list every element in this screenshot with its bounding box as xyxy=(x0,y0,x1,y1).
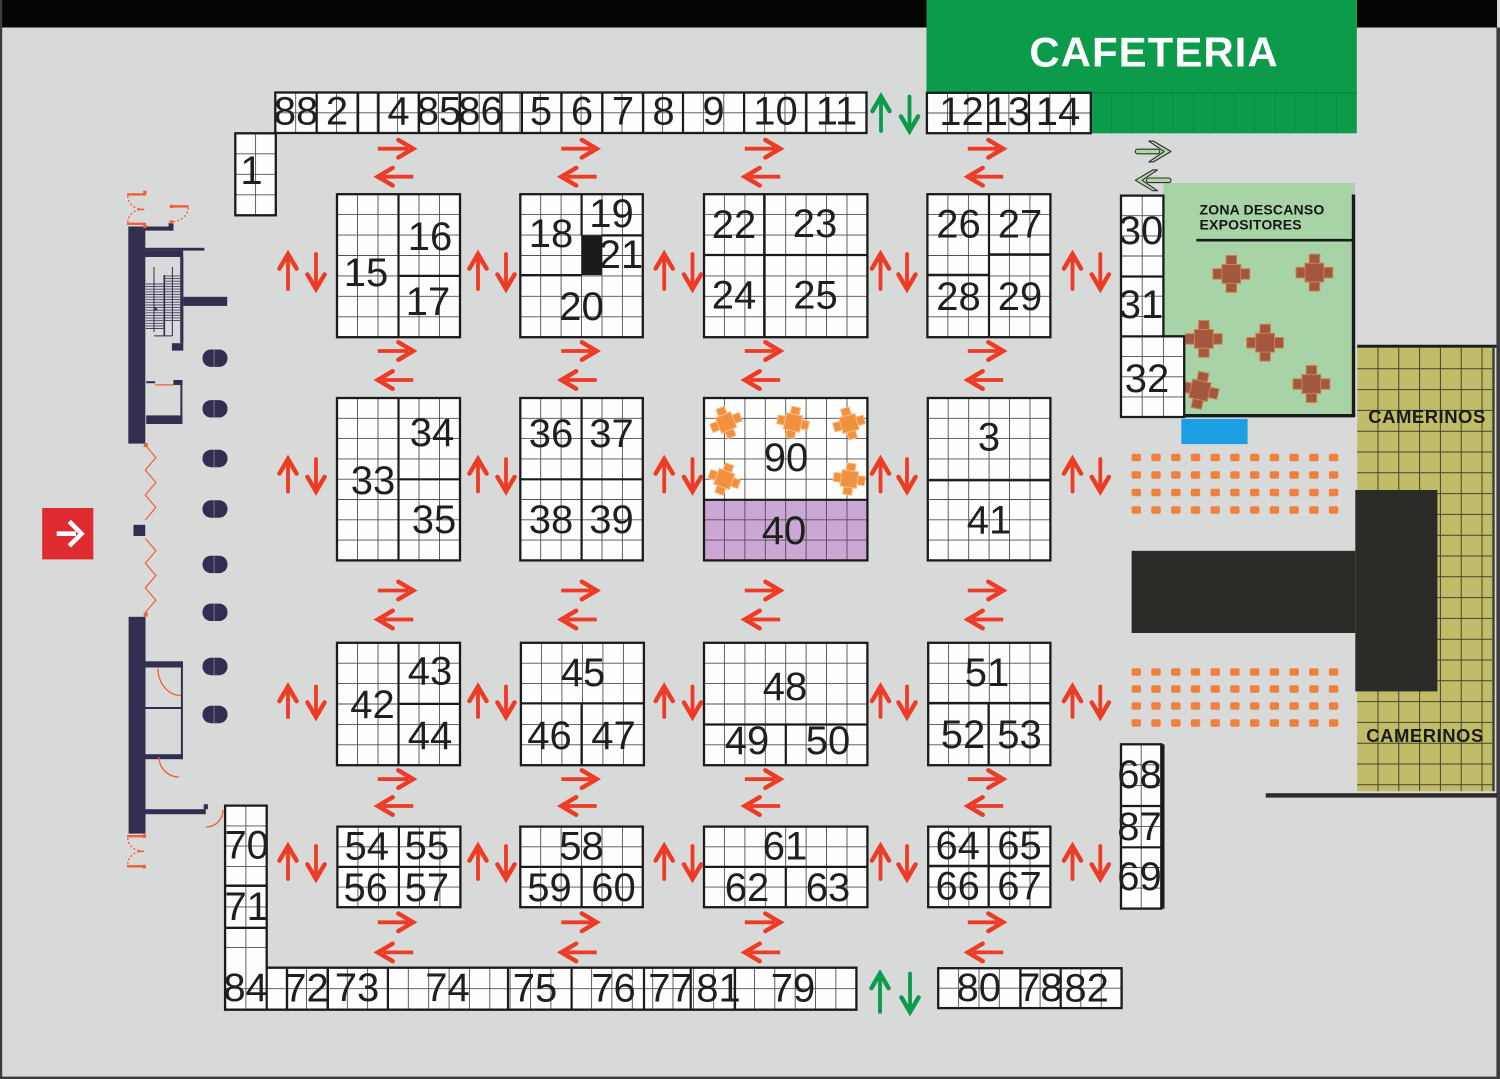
svg-text:10: 10 xyxy=(753,90,798,134)
svg-text:33: 33 xyxy=(351,459,396,503)
svg-text:37: 37 xyxy=(589,412,634,456)
svg-text:4: 4 xyxy=(387,90,409,134)
svg-text:77: 77 xyxy=(648,967,693,1011)
svg-text:69: 69 xyxy=(1117,855,1162,899)
svg-text:74: 74 xyxy=(425,966,470,1010)
svg-text:85: 85 xyxy=(417,90,462,134)
svg-text:41: 41 xyxy=(967,498,1012,542)
svg-text:27: 27 xyxy=(998,202,1043,246)
svg-text:16: 16 xyxy=(408,215,453,259)
svg-text:9: 9 xyxy=(702,90,724,134)
svg-text:72: 72 xyxy=(284,967,329,1011)
svg-text:49: 49 xyxy=(725,719,770,763)
svg-text:EXPOSITORES: EXPOSITORES xyxy=(1200,217,1302,233)
svg-text:90: 90 xyxy=(764,436,809,480)
svg-text:26: 26 xyxy=(936,202,981,246)
svg-text:13: 13 xyxy=(986,90,1031,134)
svg-text:62: 62 xyxy=(725,866,770,910)
svg-text:65: 65 xyxy=(997,824,1042,868)
svg-text:84: 84 xyxy=(223,966,268,1010)
svg-text:32: 32 xyxy=(1125,357,1170,401)
svg-text:87: 87 xyxy=(1117,805,1162,849)
svg-text:63: 63 xyxy=(806,866,851,910)
svg-text:15: 15 xyxy=(344,251,389,295)
svg-text:86: 86 xyxy=(458,90,503,134)
svg-text:66: 66 xyxy=(935,865,980,909)
svg-text:6: 6 xyxy=(571,90,593,134)
svg-text:8: 8 xyxy=(652,90,674,134)
svg-text:18: 18 xyxy=(529,212,574,256)
svg-text:88: 88 xyxy=(274,90,319,134)
svg-text:1: 1 xyxy=(240,149,262,193)
svg-text:59: 59 xyxy=(527,866,572,910)
svg-text:61: 61 xyxy=(763,825,808,869)
svg-text:36: 36 xyxy=(529,412,574,456)
svg-text:67: 67 xyxy=(997,865,1042,909)
svg-text:44: 44 xyxy=(408,714,453,758)
svg-text:75: 75 xyxy=(513,967,558,1011)
svg-text:76: 76 xyxy=(591,967,636,1011)
svg-text:22: 22 xyxy=(712,203,757,247)
svg-text:60: 60 xyxy=(591,866,636,910)
svg-text:50: 50 xyxy=(806,719,851,763)
svg-text:48: 48 xyxy=(763,665,808,709)
svg-text:3: 3 xyxy=(978,416,1000,460)
svg-text:2: 2 xyxy=(326,90,348,134)
svg-text:34: 34 xyxy=(410,411,455,455)
svg-text:73: 73 xyxy=(335,966,380,1010)
svg-text:30: 30 xyxy=(1119,209,1164,253)
svg-text:81: 81 xyxy=(696,967,741,1011)
svg-text:57: 57 xyxy=(405,866,450,910)
svg-text:80: 80 xyxy=(957,966,1002,1010)
svg-text:29: 29 xyxy=(998,275,1043,319)
svg-text:CAMERINOS: CAMERINOS xyxy=(1368,406,1486,427)
svg-text:11: 11 xyxy=(816,90,858,134)
svg-text:82: 82 xyxy=(1064,967,1109,1011)
svg-text:43: 43 xyxy=(408,650,453,694)
svg-text:56: 56 xyxy=(343,866,388,910)
svg-text:14: 14 xyxy=(1036,90,1081,134)
svg-text:CAFETERIA: CAFETERIA xyxy=(1029,29,1278,76)
svg-text:55: 55 xyxy=(405,824,450,868)
svg-text:40: 40 xyxy=(762,509,807,553)
svg-text:79: 79 xyxy=(771,967,816,1011)
svg-text:CAMERINOS: CAMERINOS xyxy=(1366,725,1484,746)
svg-text:58: 58 xyxy=(559,825,604,869)
svg-text:71: 71 xyxy=(224,885,269,929)
svg-text:24: 24 xyxy=(712,274,757,318)
svg-text:19: 19 xyxy=(589,192,634,236)
svg-text:46: 46 xyxy=(527,714,572,758)
svg-text:42: 42 xyxy=(350,683,395,727)
svg-text:70: 70 xyxy=(224,824,269,868)
svg-text:39: 39 xyxy=(589,498,634,542)
svg-text:25: 25 xyxy=(793,274,838,318)
svg-text:53: 53 xyxy=(997,713,1042,757)
svg-text:51: 51 xyxy=(965,651,1010,695)
svg-text:12: 12 xyxy=(939,90,984,134)
svg-text:31: 31 xyxy=(1119,283,1164,327)
svg-text:78: 78 xyxy=(1018,966,1063,1010)
svg-text:ZONA DESCANSO: ZONA DESCANSO xyxy=(1200,202,1325,218)
svg-text:52: 52 xyxy=(941,713,986,757)
svg-text:47: 47 xyxy=(591,714,636,758)
svg-text:28: 28 xyxy=(936,275,981,319)
svg-text:5: 5 xyxy=(530,90,552,134)
svg-text:7: 7 xyxy=(612,90,634,134)
svg-text:21: 21 xyxy=(599,233,644,277)
svg-text:64: 64 xyxy=(935,824,980,868)
svg-text:54: 54 xyxy=(345,825,390,869)
svg-text:45: 45 xyxy=(561,651,606,695)
svg-text:23: 23 xyxy=(793,202,838,246)
svg-text:17: 17 xyxy=(406,280,451,324)
svg-text:20: 20 xyxy=(559,285,604,329)
svg-text:68: 68 xyxy=(1117,753,1162,797)
svg-text:35: 35 xyxy=(412,498,457,542)
svg-text:38: 38 xyxy=(529,498,574,542)
